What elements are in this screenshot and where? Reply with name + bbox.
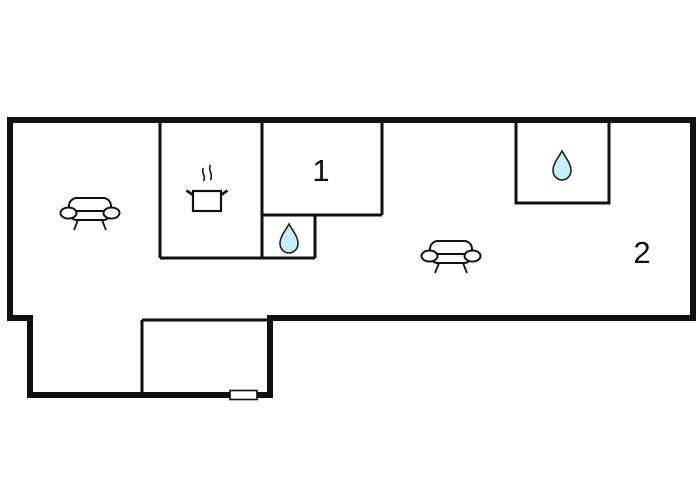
window-icon xyxy=(230,391,257,400)
room-label-1: 1 xyxy=(312,153,329,188)
room-label-2: 2 xyxy=(633,235,650,270)
floor-plan-canvas: 1 2 xyxy=(0,0,700,500)
floor-plan: 1 2 xyxy=(0,0,700,500)
